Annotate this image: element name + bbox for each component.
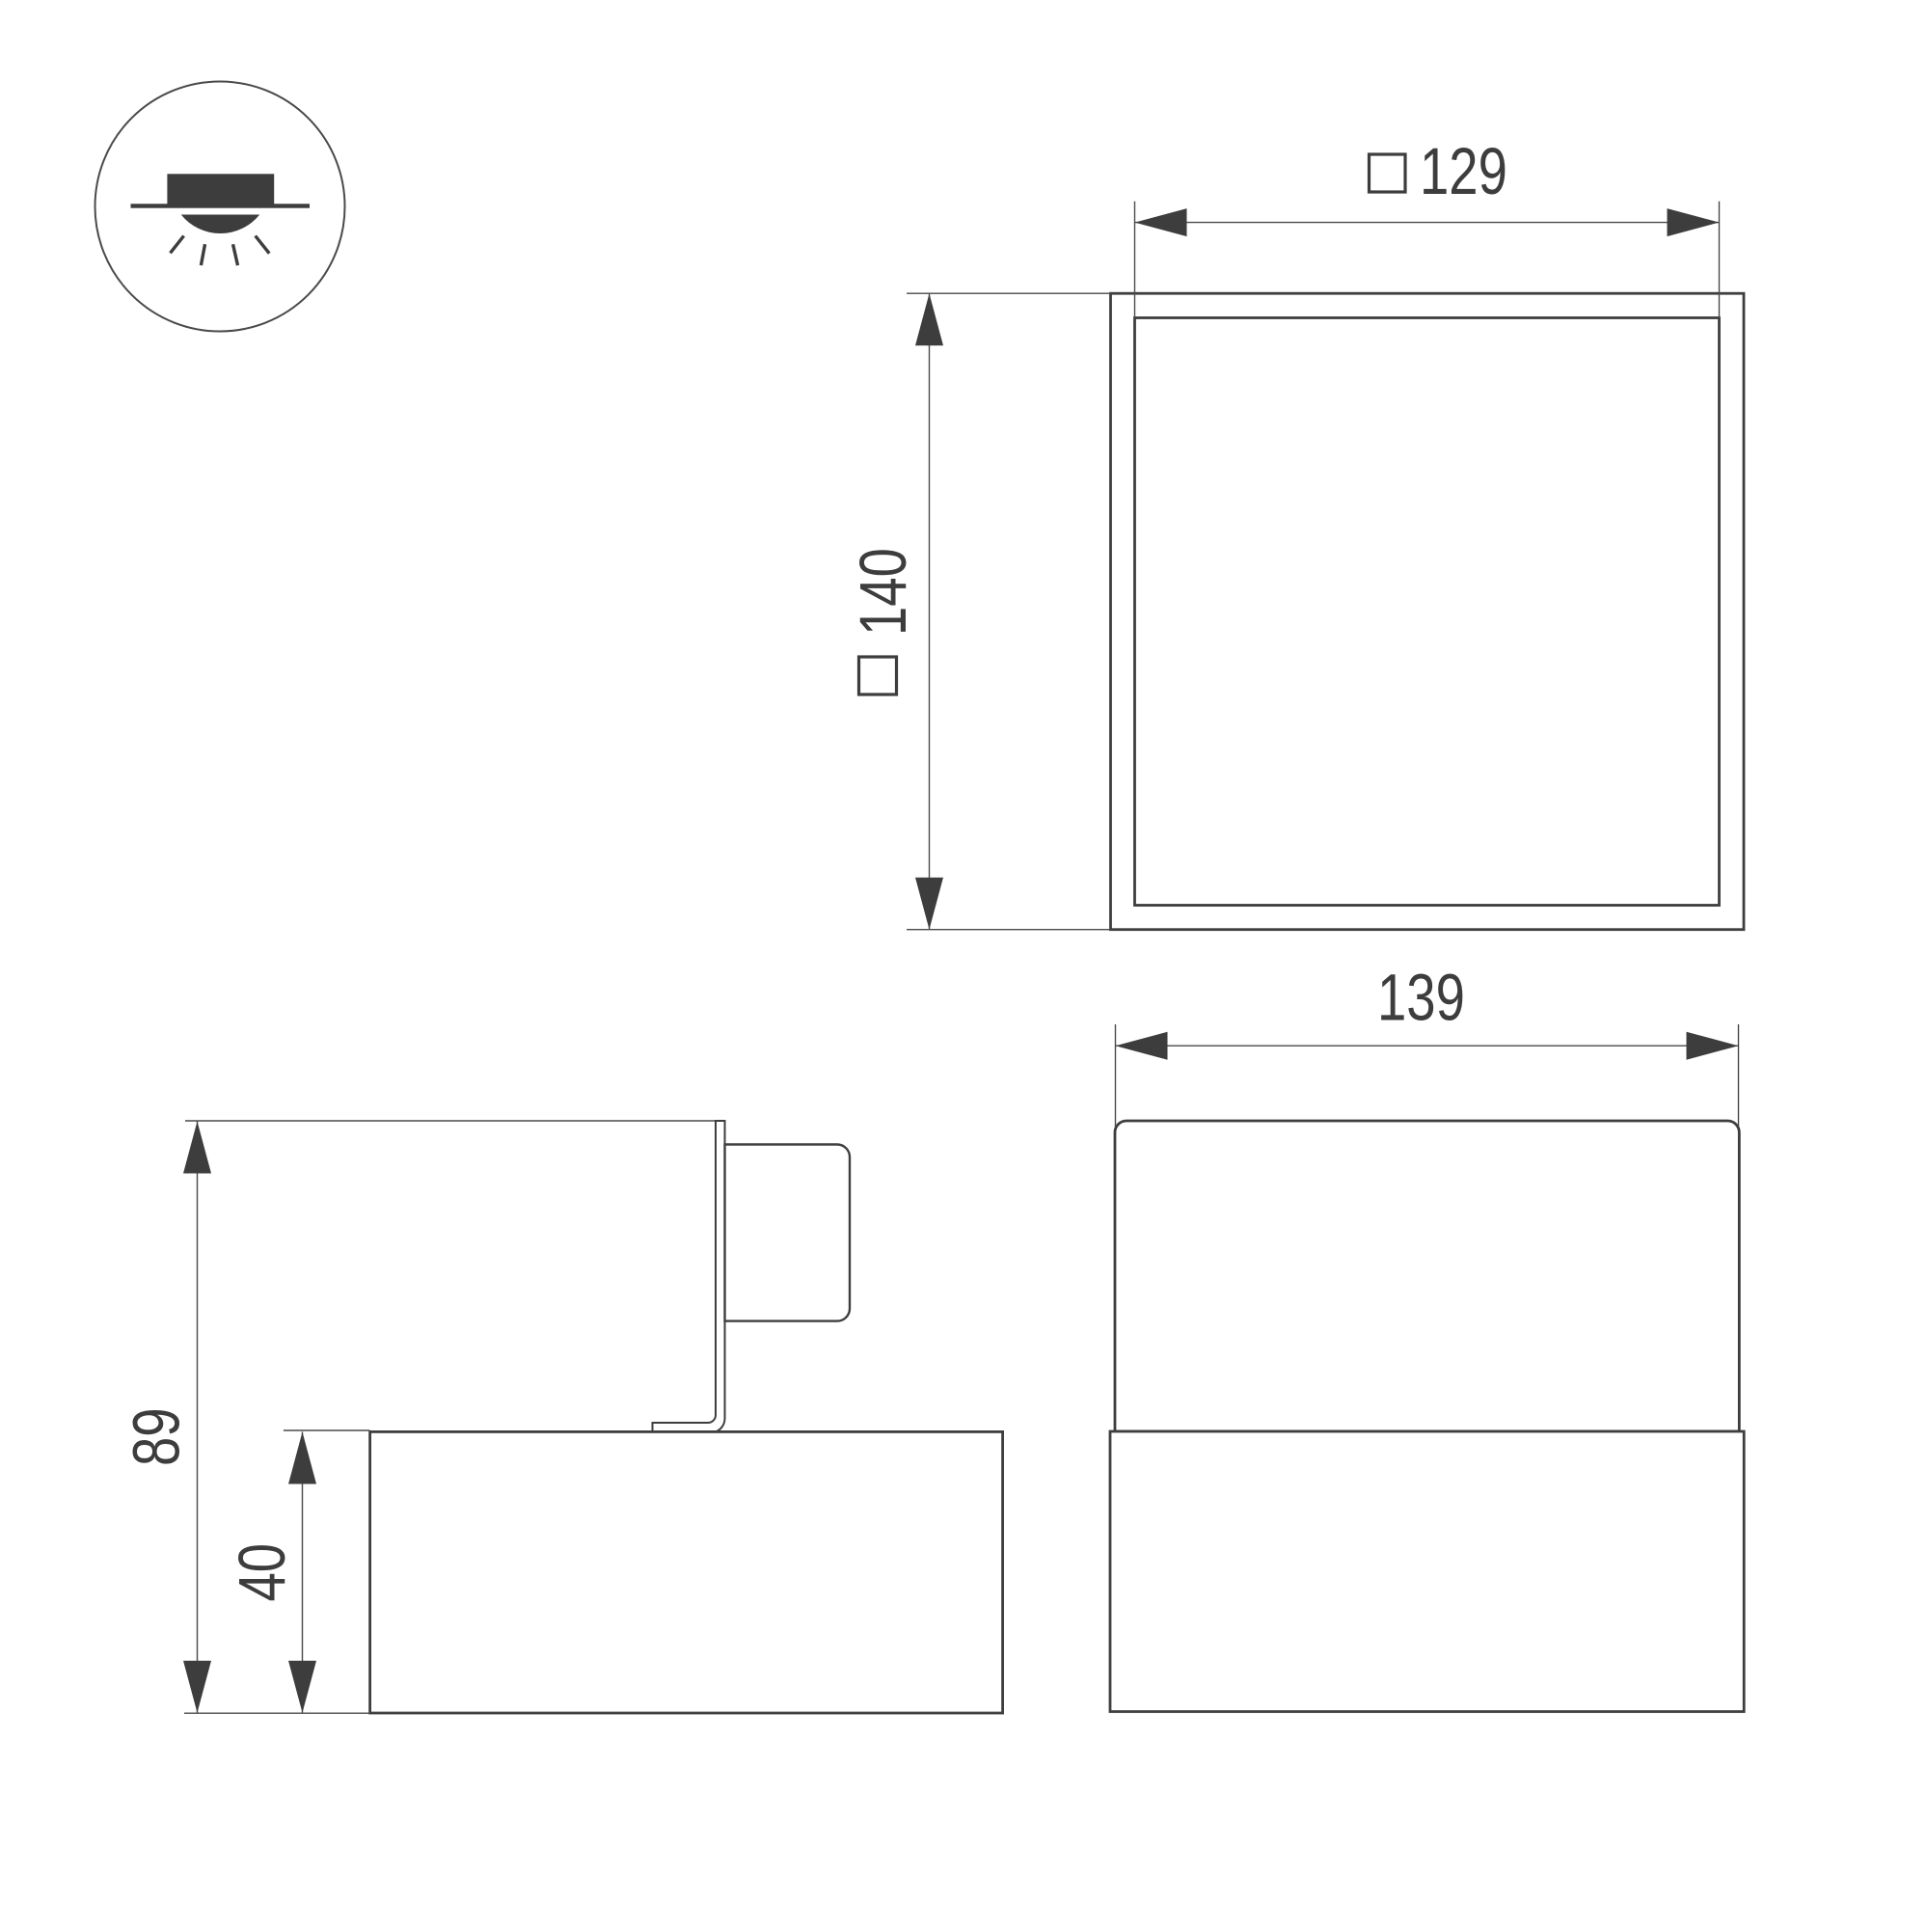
svg-text:140: 140 [847,548,921,636]
svg-text:139: 139 [1377,961,1465,1035]
svg-text:89: 89 [121,1407,195,1466]
svg-text:129: 129 [1420,135,1507,209]
svg-text:40: 40 [226,1543,300,1602]
